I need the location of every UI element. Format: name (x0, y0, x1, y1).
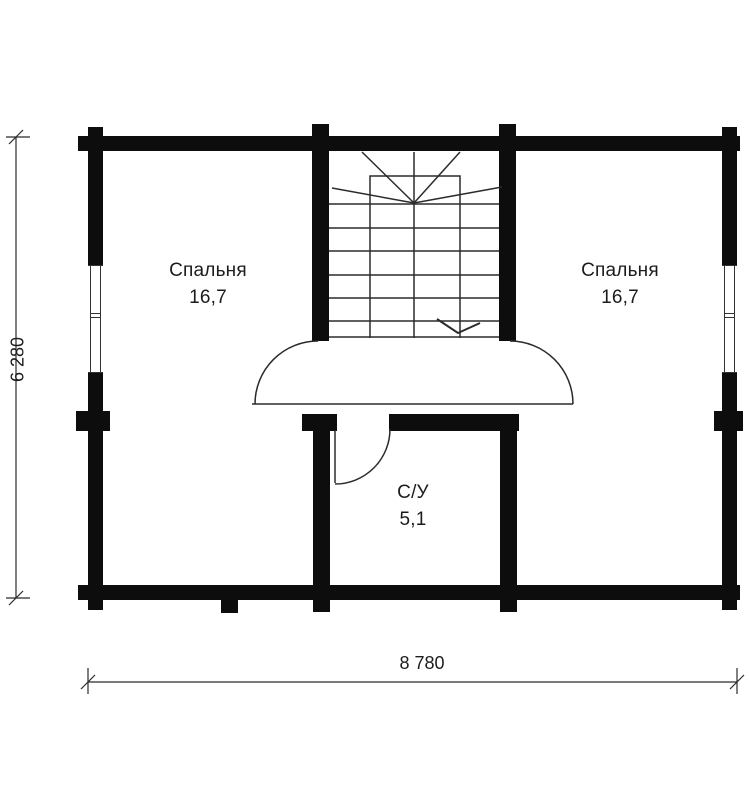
outer-walls (78, 127, 740, 610)
door-swing-arc-left (255, 341, 318, 404)
window-right (721, 265, 738, 373)
wall-bottom (78, 585, 740, 600)
bathroom-wall-top-right-segment (389, 414, 519, 431)
window-left (87, 265, 104, 373)
log-post-right-middle (714, 411, 743, 431)
doors (252, 341, 573, 484)
floor-plan-drawing (0, 0, 749, 800)
room-label-bedroom-right: Спальня 16,7 (540, 257, 700, 311)
wall-top (78, 136, 740, 151)
room-name: Спальня (128, 257, 288, 284)
stair-opening-outline (370, 176, 460, 338)
bathroom-door (335, 429, 390, 484)
stair-wall-right (499, 124, 516, 341)
room-name: С/У (363, 479, 463, 506)
log-post-left-middle (76, 411, 110, 431)
dimension-value-height: 6 280 (8, 320, 29, 400)
room-area: 16,7 (128, 284, 288, 311)
room-label-bedroom-left: Спальня 16,7 (128, 257, 288, 311)
room-area: 5,1 (363, 506, 463, 533)
bathroom-door-swing-arc (335, 429, 390, 484)
bathroom-wall-top-left-segment (302, 414, 337, 431)
double-door-hall (252, 341, 573, 404)
room-name: Спальня (540, 257, 700, 284)
stair-wall-left (312, 124, 329, 341)
interior-walls (302, 124, 519, 612)
bathroom-wall-right (500, 430, 517, 612)
staircase (329, 152, 502, 338)
room-label-bathroom: С/У 5,1 (363, 479, 463, 533)
room-area: 16,7 (540, 284, 700, 311)
log-post-bottom-stub (221, 600, 238, 613)
bathroom-wall-left (313, 430, 330, 612)
door-swing-arc-right (510, 341, 573, 404)
dimension-value-width: 8 780 (372, 653, 472, 674)
stair-winder-lines (332, 152, 502, 203)
floor-plan-page: Спальня 16,7 Спальня 16,7 С/У 5,1 6 280 … (0, 0, 749, 800)
